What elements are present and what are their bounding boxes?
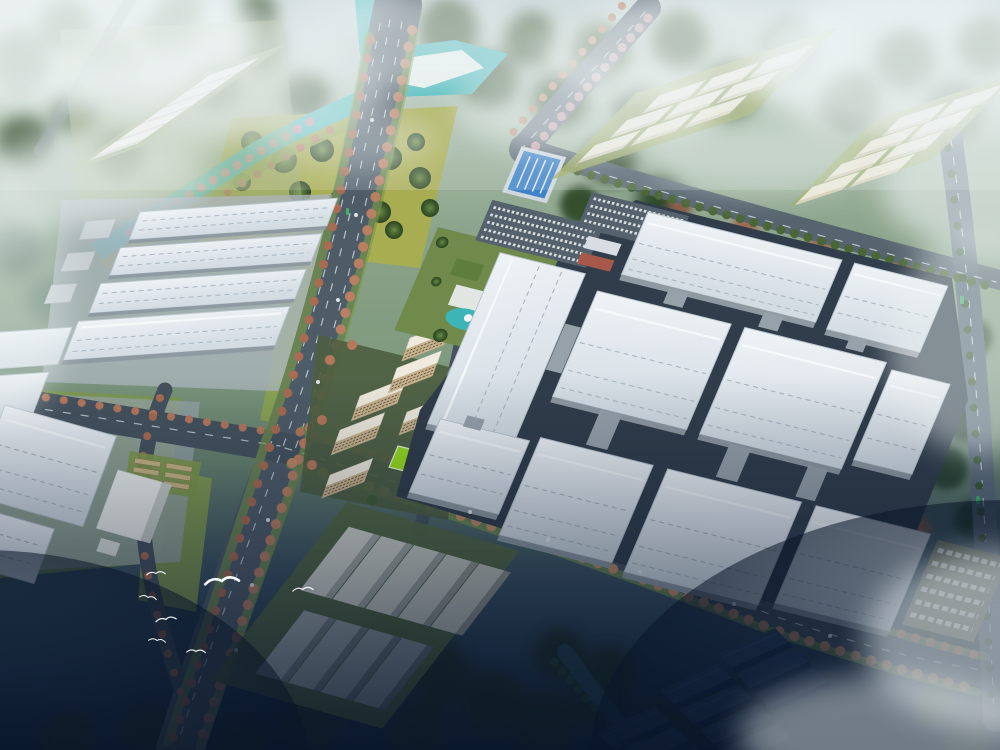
scene-svg [0, 0, 1000, 750]
top-haze [0, 0, 1000, 190]
aerial-rendering-canvas [0, 0, 1000, 750]
